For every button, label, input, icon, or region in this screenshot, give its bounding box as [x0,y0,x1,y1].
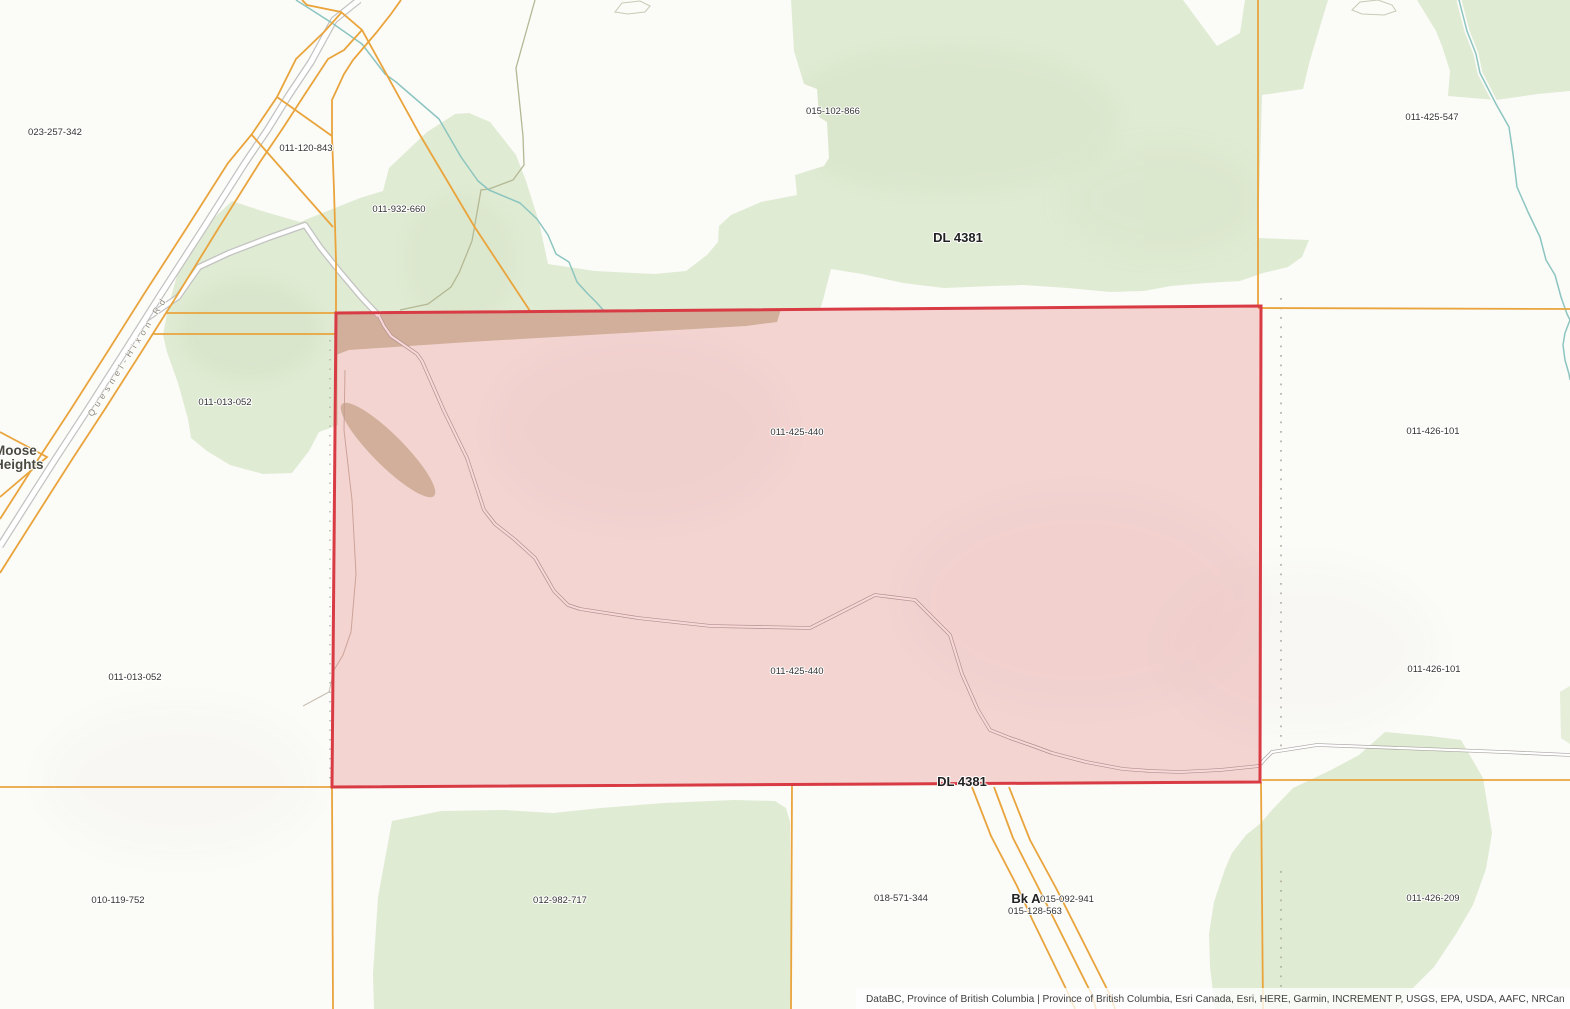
svg-text:011-426-101: 011-426-101 [1406,426,1459,437]
svg-text:011-426-101: 011-426-101 [1407,664,1460,675]
svg-text:023-257-342: 023-257-342 [28,127,82,138]
svg-text:DL 4381: DL 4381 [933,230,983,245]
svg-text:015-128-563: 015-128-563 [1008,906,1062,917]
svg-text:010-119-752: 010-119-752 [91,895,144,906]
svg-text:012-982-717: 012-982-717 [533,895,587,906]
svg-text:011-425-440: 011-425-440 [770,666,823,677]
svg-text:DL 4381: DL 4381 [937,774,987,789]
svg-text:011-013-052: 011-013-052 [198,397,251,408]
svg-text:015-092-941: 015-092-941 [1040,894,1094,905]
svg-text:011-932-660: 011-932-660 [372,204,425,215]
svg-text:018-571-344: 018-571-344 [874,893,928,904]
svg-text:011-426-209: 011-426-209 [1406,893,1459,904]
svg-text:Heights: Heights [0,457,44,472]
svg-text:011-425-547: 011-425-547 [1405,112,1458,123]
svg-text:015-102-866: 015-102-866 [806,106,860,117]
svg-text:011-013-052: 011-013-052 [108,672,161,683]
svg-text:011-425-440: 011-425-440 [770,427,823,438]
svg-text:DataBC, Province of British Co: DataBC, Province of British Columbia | P… [866,994,1565,1005]
svg-text:Bk A: Bk A [1011,891,1041,906]
svg-text:Moose: Moose [0,443,37,458]
svg-text:011-120-843: 011-120-843 [279,143,332,154]
